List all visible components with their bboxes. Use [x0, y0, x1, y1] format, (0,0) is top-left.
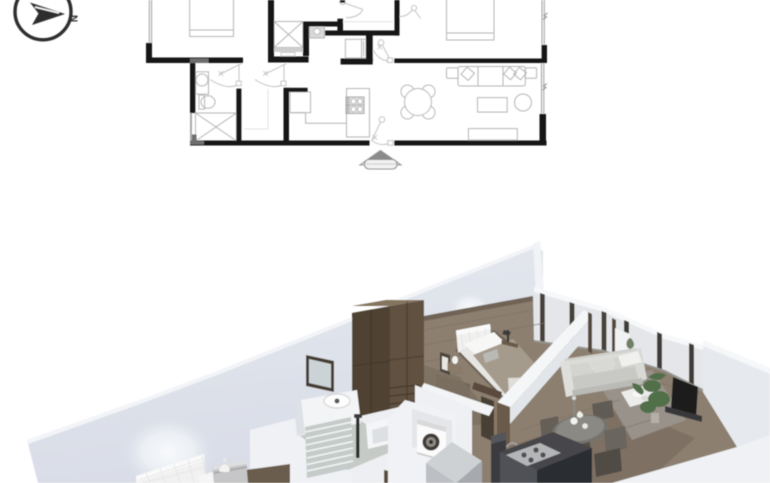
svg-text:N: N [68, 15, 79, 22]
